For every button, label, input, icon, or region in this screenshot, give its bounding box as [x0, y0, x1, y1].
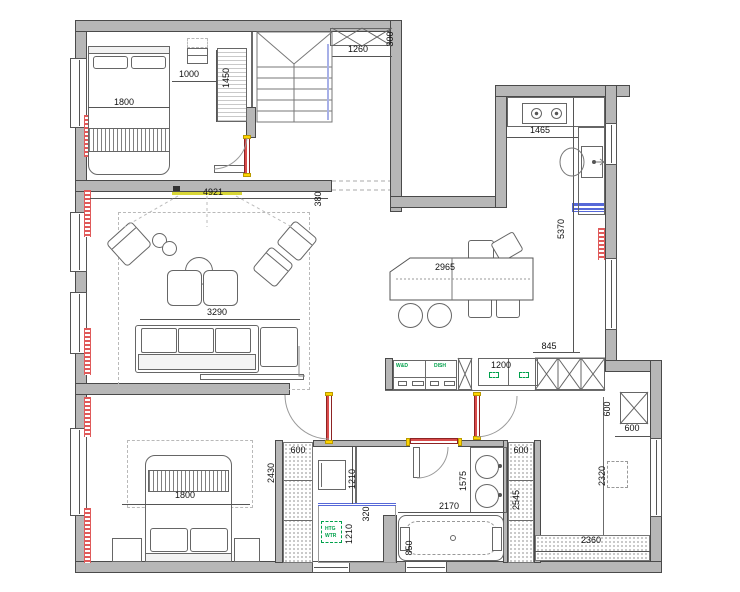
wardrobe-bed2-div1	[284, 480, 312, 481]
dim-bed2-width: 1800	[168, 490, 202, 501]
sofa-seat-2	[178, 328, 214, 353]
dimline-600h	[615, 436, 650, 437]
dimline-2170	[398, 512, 505, 513]
side-table-2	[162, 241, 177, 256]
door-bath-panel	[410, 438, 458, 444]
shower-screen	[318, 503, 396, 506]
water-heater-line2: WTR	[325, 533, 336, 539]
vanity-sink-2	[475, 484, 499, 508]
bed2-pillow-2	[190, 528, 228, 552]
door-hall-panel	[474, 395, 480, 437]
door-bedroom2-cap-bottom	[325, 440, 333, 444]
door-bedroom1-cap-bottom	[243, 173, 251, 177]
dimline-bed2	[122, 504, 250, 505]
window-left-4	[70, 428, 87, 516]
counter-green-mark-2	[519, 372, 529, 378]
dim-kitchen-cabinet: 1200	[484, 360, 518, 371]
dim-dining-table: 2965	[428, 262, 462, 273]
wd-handle-2	[412, 381, 424, 386]
dresser-top-dashed	[187, 38, 208, 48]
dining-stool-1	[398, 303, 423, 328]
dim-tub-width: 850	[403, 528, 415, 568]
dim-utility-floor: 2360	[574, 535, 608, 546]
chaise	[260, 327, 298, 367]
dimline-4921	[90, 198, 328, 199]
pillow-1	[93, 56, 128, 69]
dimline-1450	[216, 50, 217, 122]
utility-xbox-column	[620, 392, 648, 424]
wardrobe-bed2-div2	[284, 520, 312, 521]
dim-bath-length: 2170	[432, 501, 466, 512]
vanity-sink-1	[475, 455, 499, 479]
console-behind-sofa	[200, 374, 304, 380]
bathtub-drain	[450, 535, 456, 541]
door-hall-cap-bottom	[473, 436, 481, 440]
xbox-cabinet-single	[458, 358, 472, 390]
dimline-1000	[172, 81, 217, 82]
door-bath-leaf	[413, 447, 420, 478]
wall-kitchen-left	[495, 85, 507, 208]
dim-bed2-wardrobe-height: 2430	[265, 453, 277, 493]
wardrobe-bed2	[283, 442, 313, 563]
dresser-line	[188, 55, 207, 56]
xbox-cabinet-row	[535, 358, 605, 390]
door-bedroom2-panel	[326, 395, 332, 441]
wall-kitchen-entry	[390, 196, 507, 208]
dim-utility-column-v: 600	[601, 389, 613, 429]
wd-cabinet-band	[394, 377, 456, 378]
burner-1	[531, 108, 542, 119]
dim-living-width: 4921	[196, 187, 230, 198]
bathtub-deck-right	[492, 527, 502, 551]
cabinet-row-baseline	[385, 390, 605, 391]
dim-utility-niche: 2320	[596, 456, 608, 496]
dimline-1260	[332, 56, 392, 57]
dining-chair-3	[468, 296, 492, 318]
door-bedroom1-leaf	[214, 165, 247, 173]
dining-chair-2	[490, 231, 524, 263]
dim-sofa-zone: 3290	[200, 307, 234, 318]
water-heater-label-box: HTG WTR	[321, 521, 342, 543]
washing-machine	[318, 460, 346, 490]
nightstand-1	[112, 538, 142, 562]
nightstand-2	[234, 538, 260, 562]
door-bedroom1-panel	[244, 138, 250, 174]
dim-bed1-width: 1800	[107, 97, 141, 108]
dim-wardrobe1-height: 1450	[220, 58, 232, 98]
door-bath-cap-right	[458, 438, 462, 446]
wd-handle-3	[430, 381, 439, 386]
pouf-2	[203, 270, 238, 306]
tv-connector	[173, 186, 180, 191]
dim-bath-wardrobe-height: 2545	[510, 480, 522, 520]
wd-cabinet-divider	[425, 361, 426, 389]
window-kitchen-2	[605, 258, 617, 330]
dim-kitchen-wall: 5370	[555, 209, 567, 249]
bed-master-headboard	[88, 46, 170, 54]
door-arc-hall	[477, 396, 517, 437]
vanity-faucet-1	[498, 464, 502, 468]
dim-bath-wardrobe: 600	[504, 445, 538, 456]
bed2-headboard	[145, 553, 232, 562]
dimline-845	[533, 352, 580, 353]
dresser	[187, 48, 208, 64]
dim-hall-shelf: 1260	[341, 44, 375, 55]
wd-handle-1	[398, 381, 407, 386]
wall-line-bed1-stairs	[251, 32, 253, 107]
door-arc-bedroom2	[285, 395, 329, 439]
dim-shower-offset: 320	[360, 494, 372, 534]
wall-bath-top-right	[458, 440, 507, 447]
dim-kitchen-gap: 845	[532, 341, 566, 352]
window-kitchen-1	[605, 123, 617, 165]
sofa-seat-3	[215, 328, 251, 353]
dimline-3290	[140, 319, 300, 320]
window-utility	[650, 438, 662, 517]
door-bedroom2-cap-top	[325, 392, 333, 396]
wd-handle-4	[444, 381, 455, 386]
radiator-living-2	[84, 328, 91, 375]
dim-kitchen-counter: 1465	[523, 125, 557, 136]
washer-dryer-label: W&D	[396, 363, 408, 369]
bed-2-runner	[148, 470, 229, 492]
dimline-1465	[507, 137, 578, 138]
bed-master-runner	[88, 128, 170, 152]
dimline-2360	[535, 551, 650, 552]
dim-shower-width: 1210	[343, 514, 355, 554]
dishwasher-label: DISH	[434, 363, 446, 369]
vanity-faucet-2	[498, 493, 502, 497]
water-heater-line1: HTG	[325, 526, 336, 532]
door-bedroom1-cap-top	[243, 135, 251, 139]
pillow-2	[131, 56, 166, 69]
bed2-pillow-1	[150, 528, 188, 552]
washing-machine-line	[321, 463, 322, 487]
dim-bed1-gap: 1000	[172, 69, 206, 80]
dim-hall-shelf-depth: 300	[384, 19, 396, 59]
dim-tv-wall-depth: 380	[312, 179, 324, 219]
door-bath-cap-left	[406, 438, 410, 446]
utility-niche-dashed	[607, 461, 628, 488]
pouf-1	[167, 270, 202, 306]
opening-dashed	[332, 181, 390, 190]
floor-plan: HTG WTR	[0, 0, 740, 592]
stairs	[257, 32, 332, 122]
burner-2	[551, 108, 562, 119]
dining-chair-1	[468, 240, 494, 260]
dimline-2965	[390, 278, 533, 279]
wall-pier-cabinets	[385, 358, 393, 390]
sofa-back	[138, 354, 256, 370]
door-hall-cap-top	[473, 392, 481, 396]
wall-pier-bed1	[246, 107, 256, 138]
dim-bed2-wardrobe: 600	[281, 445, 315, 456]
sofa-seat-1	[141, 328, 177, 353]
kitchen-faucet	[592, 160, 596, 164]
dining-chair-4	[496, 296, 520, 318]
radiator-dining	[598, 228, 605, 260]
radiator-bed2-1	[84, 397, 91, 437]
wardrobe-bath-div2	[509, 520, 533, 521]
radiator-bed2-2	[84, 508, 91, 563]
dim-utility-column-h: 600	[615, 423, 649, 434]
counter-green-mark-1	[489, 372, 499, 378]
dim-vanity-length: 1575	[457, 461, 469, 501]
dim-washer-zone: 1210	[346, 459, 358, 499]
dimline-5370	[573, 98, 574, 352]
dining-stool-2	[427, 303, 452, 328]
door-arc-bath	[417, 447, 448, 478]
